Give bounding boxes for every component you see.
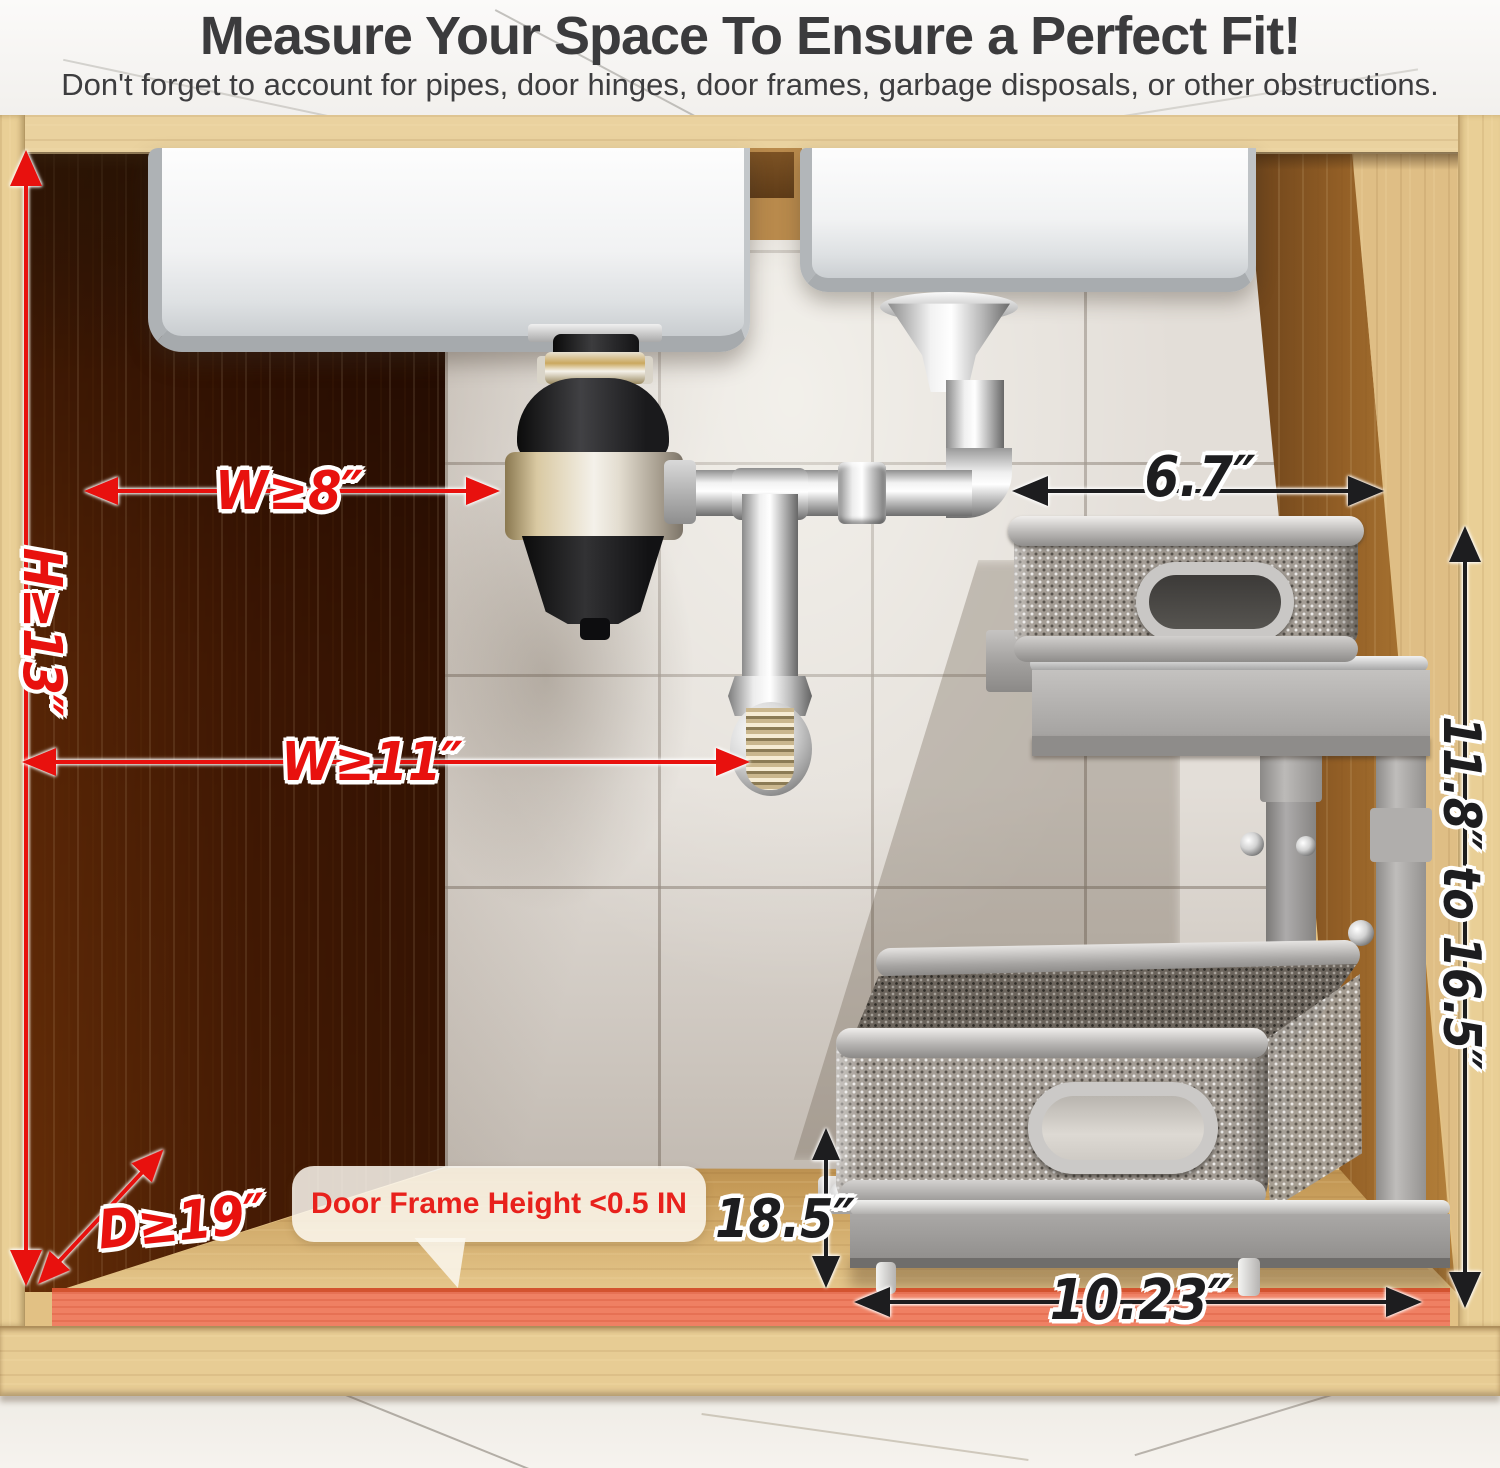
infographic-root: Measure Your Space To Ensure a Perfect F… <box>0 0 1500 1468</box>
disposal-nub <box>580 618 610 640</box>
lower-basket-handle-cutout <box>1028 1082 1218 1174</box>
floor-grout-line <box>1135 1396 1346 1456</box>
leg-adjust-screw <box>1240 832 1264 856</box>
floor-marble-vein <box>701 1413 1028 1461</box>
label-adjustable-height: 11.8″ to 16.5″ <box>1432 716 1492 1070</box>
base-front-face <box>850 1214 1450 1262</box>
page-subtitle: Don't forget to account for pipes, door … <box>61 67 1439 103</box>
leg-adjust-screw <box>1296 836 1316 856</box>
cabinet-drop-shadow <box>0 1392 1500 1402</box>
label-width-pipe: W≥11″ <box>281 731 462 794</box>
floor-grout-line <box>308 1396 531 1468</box>
label-upper-shelf-width: 6.7″ <box>1145 445 1256 510</box>
kitchen-marble-floor <box>0 1396 1500 1468</box>
page-title: Measure Your Space To Ensure a Perfect F… <box>200 5 1300 67</box>
label-width-disposal: W≥8″ <box>215 460 363 523</box>
door-frame-note: Door Frame Height <0.5 IN <box>311 1187 687 1221</box>
disposal-band <box>505 452 683 540</box>
disposal-dome <box>517 378 669 460</box>
organizer-rear-leg-joint <box>1260 750 1322 802</box>
base-foot <box>1238 1258 1260 1296</box>
drain-pipe-horizontal <box>664 470 972 516</box>
label-lower-clearance: 18.5″ <box>715 1188 855 1251</box>
upper-shelf-deck <box>1032 670 1430 736</box>
cabinet-front-bottom-face <box>0 1326 1500 1396</box>
label-base-width: 10.23″ <box>1050 1268 1231 1333</box>
left-sink-basin <box>148 148 750 352</box>
p-trap-threads <box>746 708 794 790</box>
upper-basket-rim <box>1008 516 1364 546</box>
p-trap-pipe-down <box>742 494 798 688</box>
cabinet-left-frame <box>0 115 25 1326</box>
upper-shelf-front-lip <box>1032 736 1430 756</box>
between-sink-block <box>744 152 794 198</box>
pipe-coupling-ring <box>838 462 886 524</box>
disposal-outlet <box>664 460 696 524</box>
label-cabinet-height: H≥13″ <box>11 548 74 717</box>
base-bottom-edge <box>850 1258 1450 1268</box>
lower-basket-front-rim <box>836 1028 1268 1058</box>
upper-basket-handle-cutout <box>1136 562 1294 642</box>
organizer-front-leg-joint <box>1370 808 1432 862</box>
right-sink-basin <box>800 148 1256 292</box>
upper-basket-bottom-rim <box>1014 636 1358 662</box>
